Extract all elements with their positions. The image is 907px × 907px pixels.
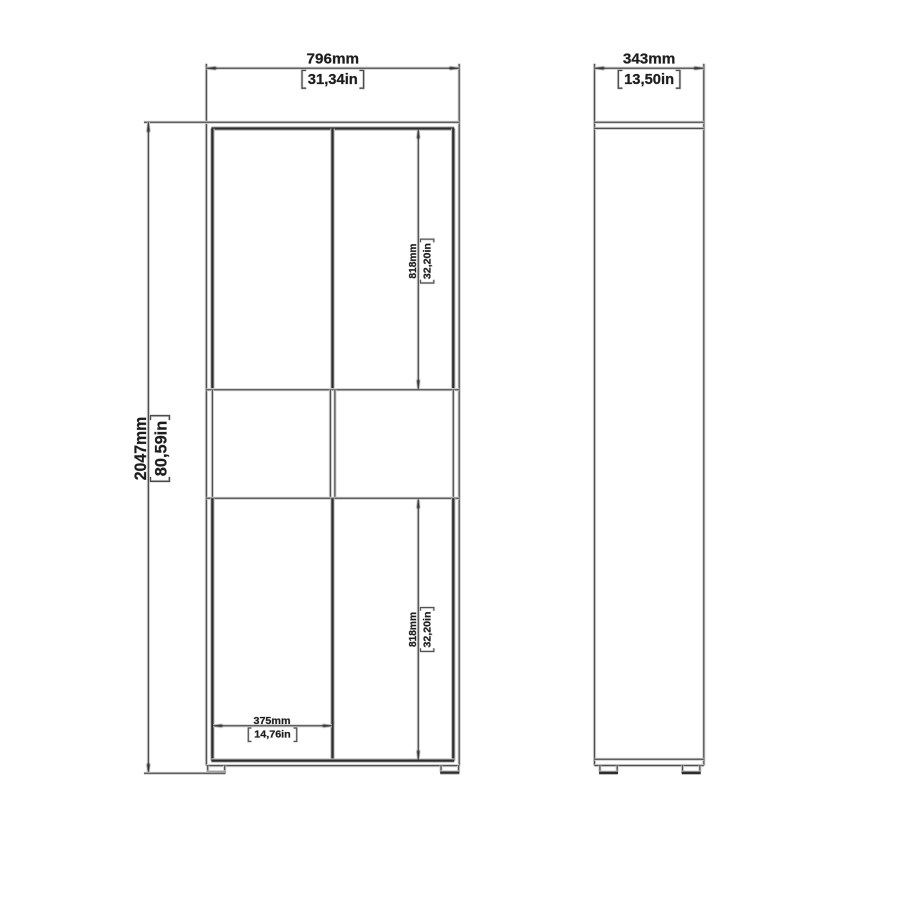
svg-text:818mm: 818mm <box>407 612 419 647</box>
svg-text:13,50in: 13,50in <box>624 71 674 88</box>
svg-text:32,20in: 32,20in <box>422 243 434 279</box>
svg-text:80,59in: 80,59in <box>152 421 170 477</box>
svg-text:31,34in: 31,34in <box>308 71 358 88</box>
svg-text:32,20in: 32,20in <box>422 612 434 648</box>
svg-text:343mm: 343mm <box>623 51 676 68</box>
svg-text:818mm: 818mm <box>407 244 419 279</box>
svg-text:796mm: 796mm <box>307 51 360 68</box>
svg-text:375mm: 375mm <box>254 715 291 727</box>
svg-text:14,76in: 14,76in <box>254 729 291 741</box>
svg-text:2047mm: 2047mm <box>132 417 150 481</box>
